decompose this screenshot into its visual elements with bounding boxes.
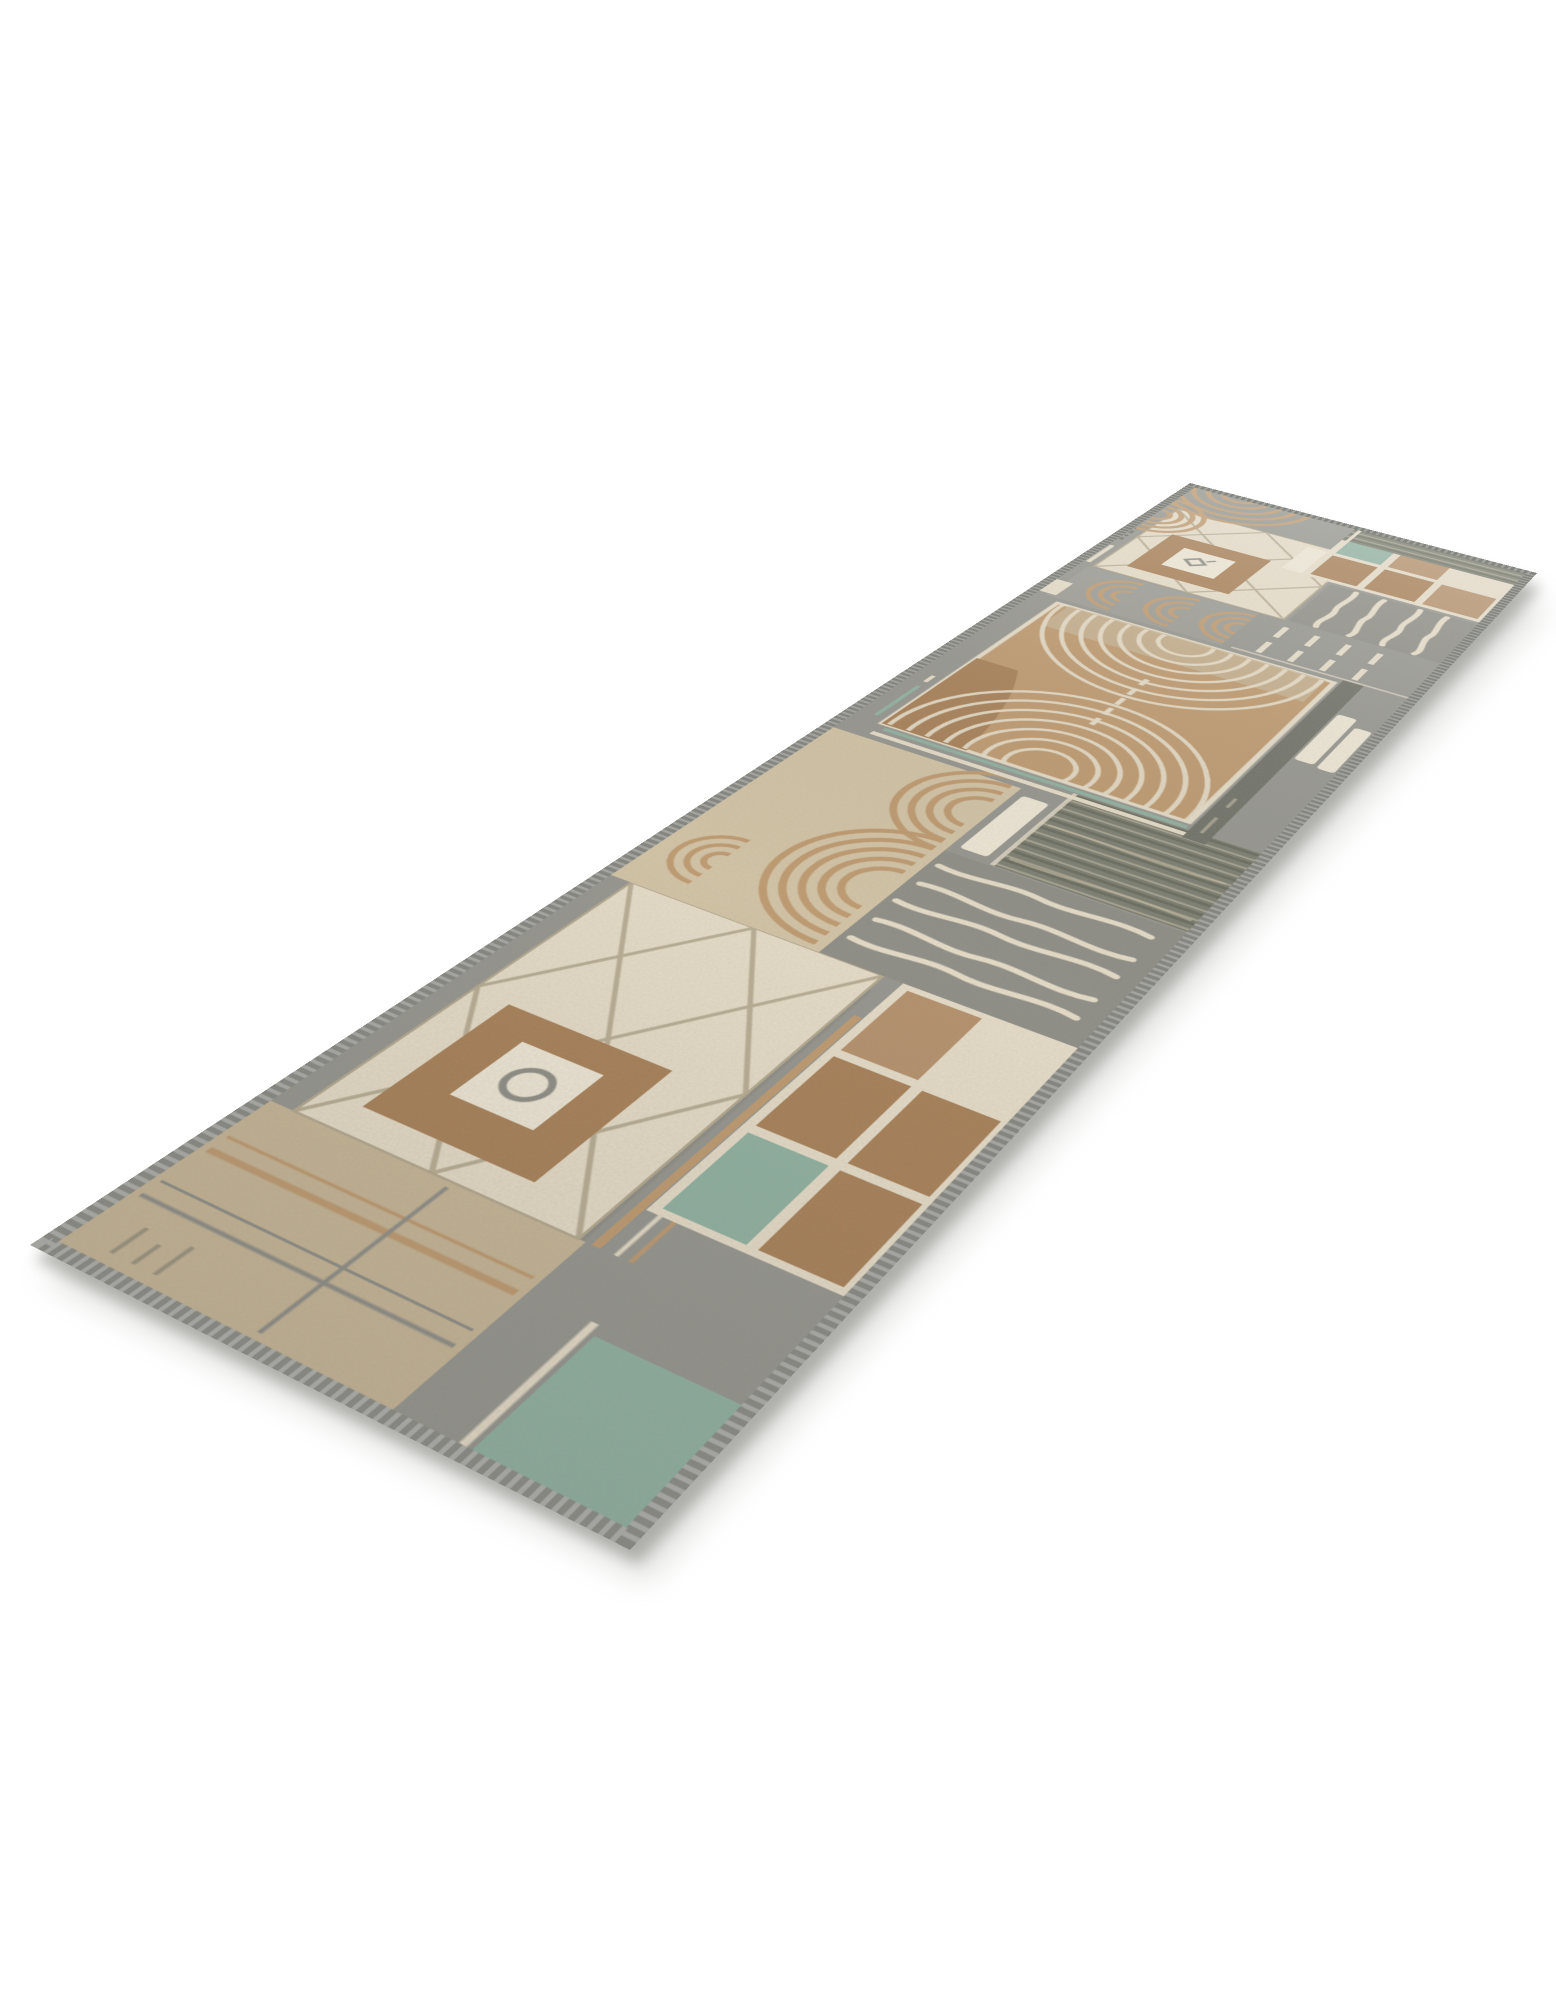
product-photo-canvas	[0, 0, 1556, 2000]
